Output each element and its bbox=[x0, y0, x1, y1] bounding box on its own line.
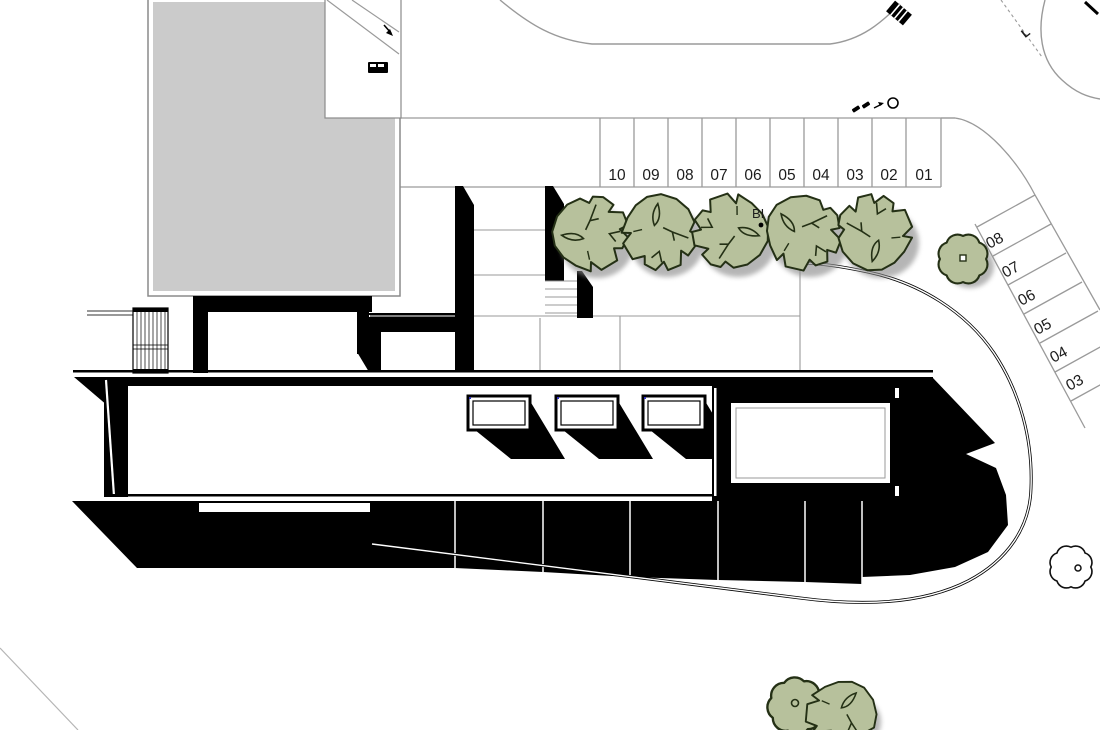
skylight-2 bbox=[556, 396, 653, 459]
parking-row-top: 10 09 08 07 06 05 04 03 02 01 bbox=[400, 118, 955, 187]
wall-right bbox=[357, 312, 369, 354]
svg-text:10: 10 bbox=[608, 167, 626, 184]
gray-building bbox=[148, 0, 401, 296]
skylight-1 bbox=[468, 396, 565, 459]
svg-text:07: 07 bbox=[999, 258, 1022, 281]
svg-text:08: 08 bbox=[676, 167, 693, 184]
top-right-curb-curve bbox=[1041, 0, 1100, 99]
wall-bar-mid bbox=[369, 317, 456, 332]
south-band bbox=[197, 501, 862, 584]
ramp-notch bbox=[325, 0, 401, 118]
svg-text:03: 03 bbox=[1063, 371, 1086, 394]
core-wall-west bbox=[455, 186, 474, 372]
south-band-west-wedge bbox=[72, 501, 197, 568]
top-road-curve bbox=[500, 0, 900, 44]
stair-side-wall bbox=[577, 271, 593, 318]
tree-small-scallop bbox=[939, 235, 988, 284]
skylights bbox=[468, 396, 740, 459]
wall-left bbox=[193, 296, 208, 373]
side-stall-dividers bbox=[977, 195, 1100, 401]
white-shrub bbox=[1050, 546, 1092, 588]
svg-text:02: 02 bbox=[880, 167, 897, 184]
wall-bar-top bbox=[193, 296, 372, 312]
survey-marker bbox=[852, 98, 898, 113]
svg-text:01: 01 bbox=[915, 167, 932, 184]
main-building bbox=[72, 370, 1008, 584]
svg-text:03: 03 bbox=[846, 167, 863, 184]
wall-bar-thin bbox=[369, 313, 456, 315]
road-letter-label: L bbox=[1018, 25, 1032, 41]
courtyard bbox=[712, 385, 905, 501]
svg-text:04: 04 bbox=[812, 167, 830, 184]
site-plan-canvas: L 10 09 08 07 06 05 04 03 02 01 bbox=[0, 0, 1100, 730]
slab-top-band bbox=[104, 377, 933, 386]
svg-text:04: 04 bbox=[1047, 343, 1071, 366]
car-icon bbox=[368, 62, 388, 73]
svg-text:06: 06 bbox=[744, 167, 761, 184]
slab-top-line bbox=[73, 370, 933, 373]
bottom-left-road-line bbox=[0, 648, 78, 730]
south-band-notch bbox=[199, 503, 370, 512]
core-landing-lines bbox=[474, 230, 545, 275]
parking-row-side-labels: 08 07 06 05 04 03 bbox=[983, 229, 1086, 394]
svg-text:07: 07 bbox=[710, 167, 727, 184]
svg-text:BI: BI bbox=[752, 206, 764, 221]
stair-hatch bbox=[87, 308, 168, 373]
svg-text:05: 05 bbox=[778, 167, 795, 184]
site-plan-drawing: L 10 09 08 07 06 05 04 03 02 01 bbox=[0, 0, 1100, 730]
stair-steps bbox=[545, 281, 578, 318]
top-right-corner-tick bbox=[1085, 2, 1098, 14]
slab-left-shadow bbox=[74, 377, 108, 406]
road-hatch-marker bbox=[886, 1, 912, 26]
svg-text:09: 09 bbox=[642, 167, 659, 184]
